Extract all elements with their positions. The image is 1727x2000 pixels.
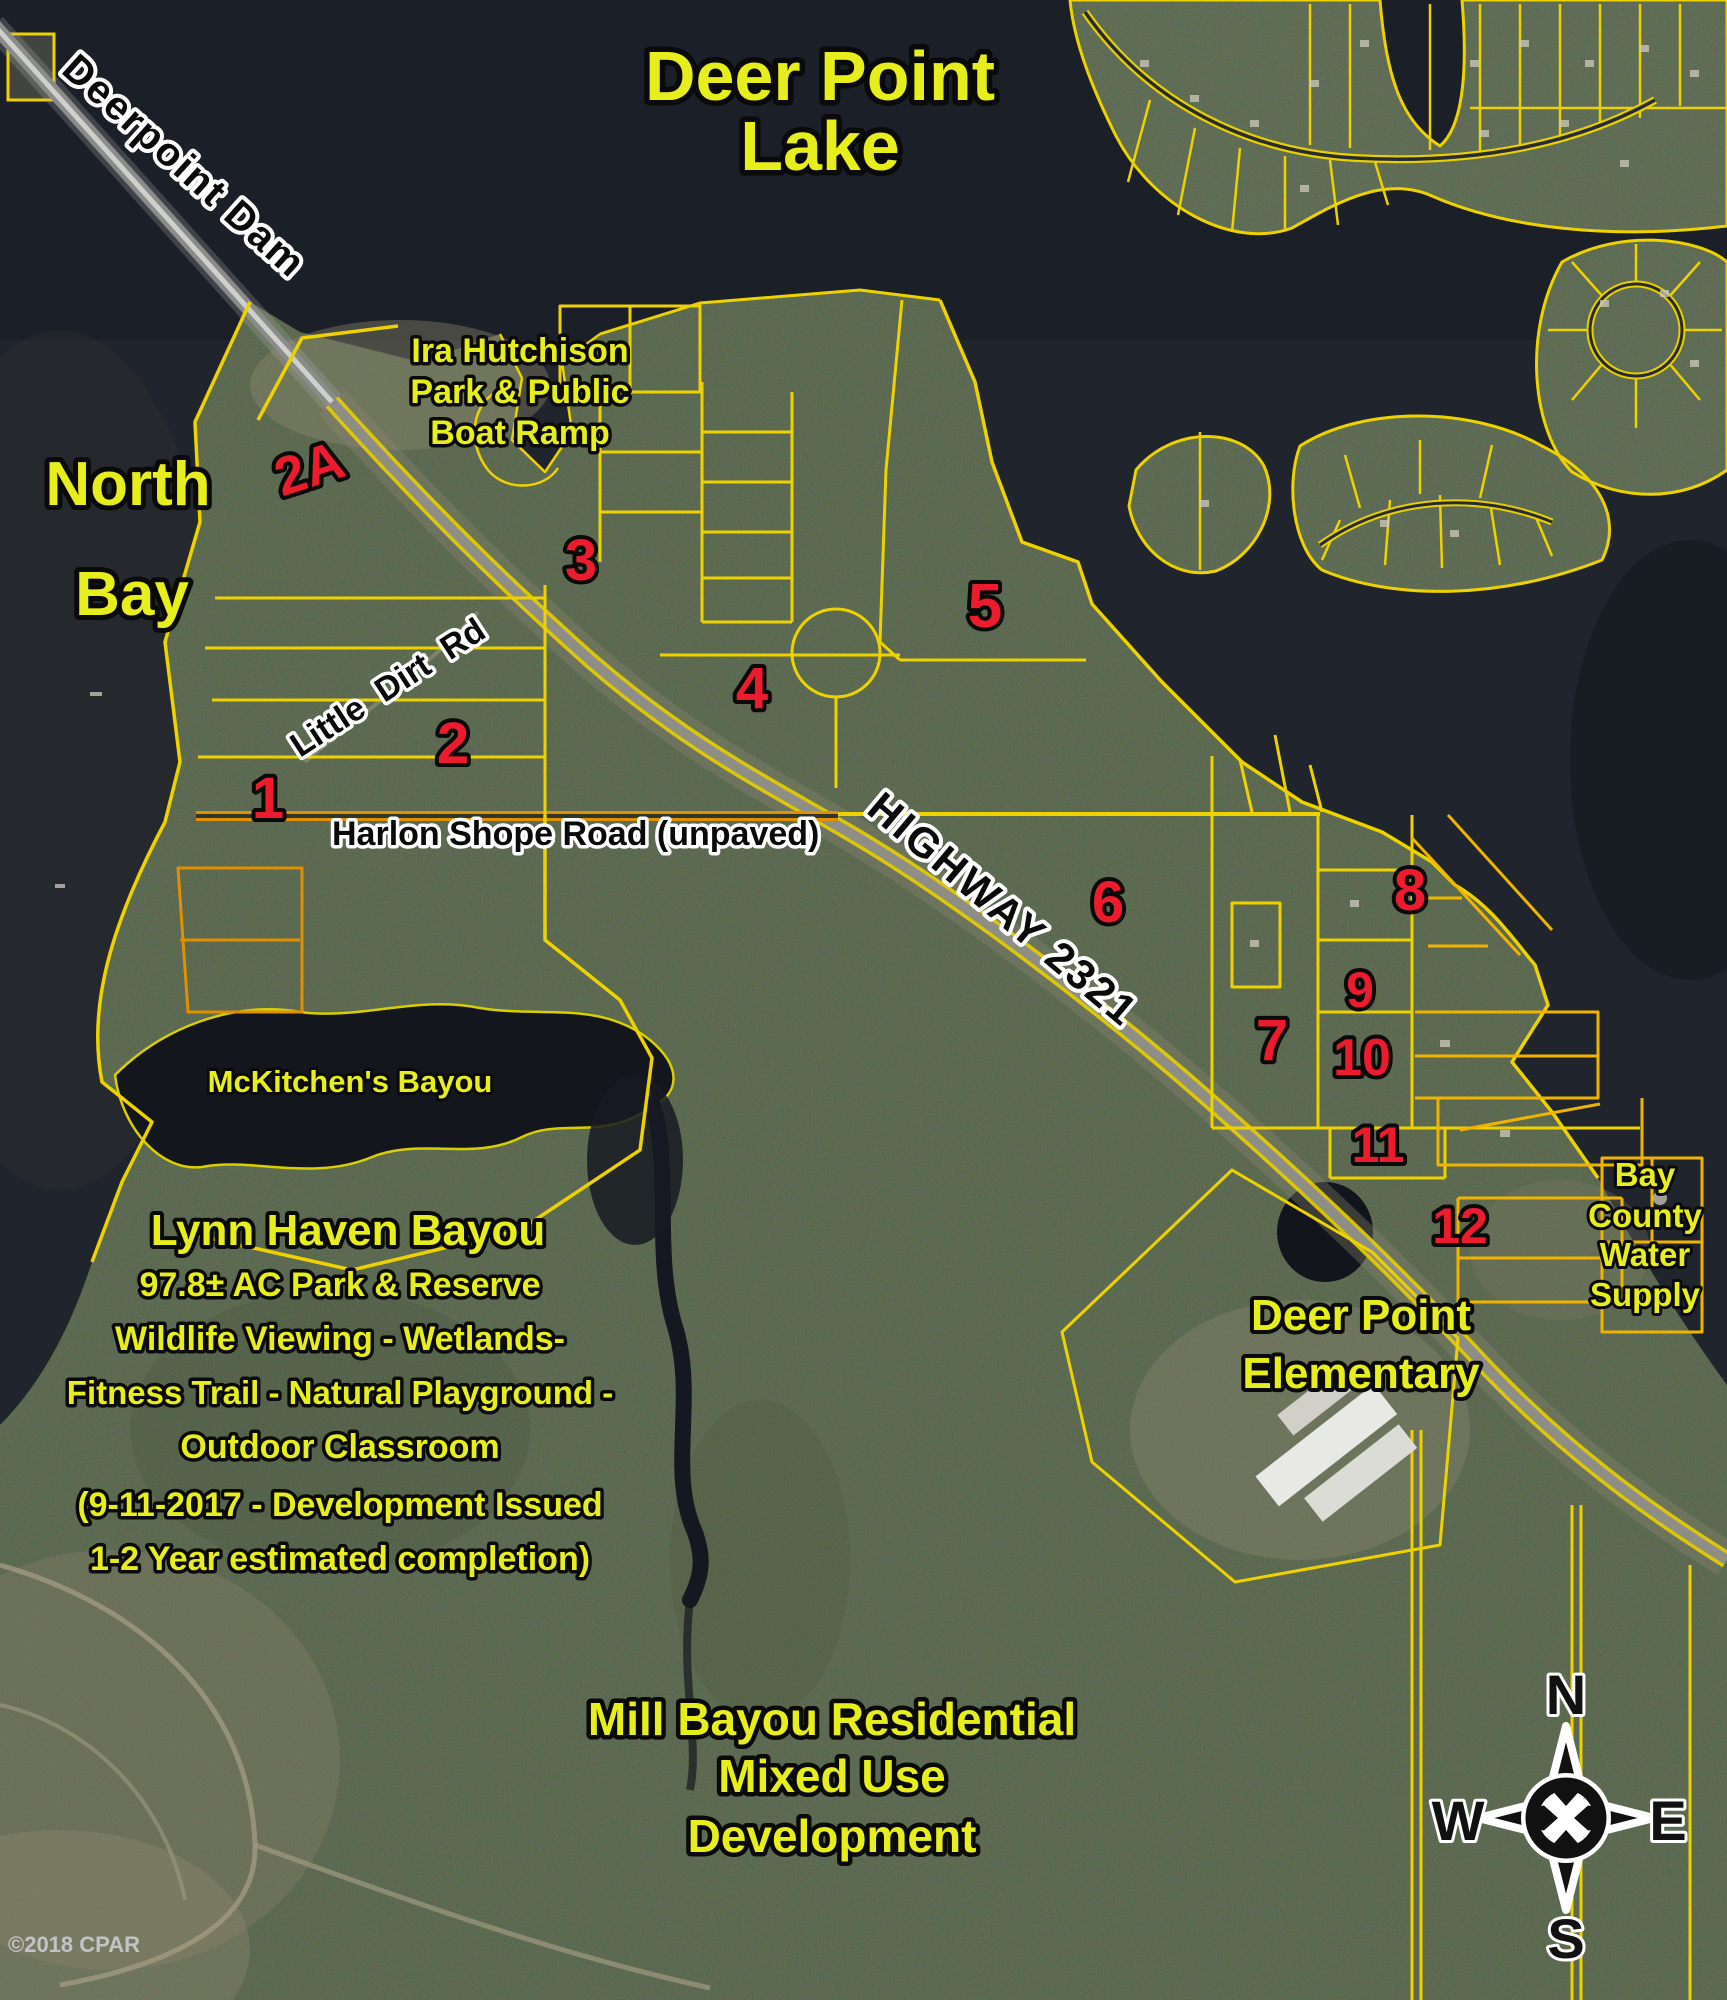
parcel-number-6: 6 <box>1092 870 1124 935</box>
parcel-number-12: 12 <box>1432 1198 1488 1254</box>
parcel-number-7: 7 <box>1256 1008 1288 1073</box>
park-label-line2: Park & Public <box>410 373 629 411</box>
bay-label-line1: North <box>45 450 210 519</box>
bay-label-line2: Bay <box>75 560 189 629</box>
reserve-line6: (9-11-2017 - Development Issued <box>77 1486 602 1524</box>
aerial-parcel-map: Deer Point Lake Deerpoint Dam North Bay … <box>0 0 1727 2000</box>
mill-line1: Mill Bayou Residential <box>588 1693 1076 1745</box>
parcel-number-8: 8 <box>1394 858 1426 923</box>
lake-title-line2: Lake <box>740 107 900 185</box>
compass-e-label: E <box>1649 1789 1686 1852</box>
parcel-number-10: 10 <box>1333 1029 1391 1087</box>
reserve-line1: Lynn Haven Bayou <box>151 1206 545 1255</box>
parcel-number-5: 5 <box>968 572 1002 641</box>
mill-line3: Development <box>688 1810 977 1862</box>
compass-s-label: S <box>1547 1907 1584 1970</box>
water-supply-line2: County <box>1588 1197 1702 1234</box>
reserve-line3: Wildlife Viewing - Wetlands- <box>115 1320 565 1358</box>
school-label-line1: Deer Point <box>1251 1291 1471 1340</box>
parcel-number-11: 11 <box>1352 1117 1405 1173</box>
compass-n-label: N <box>1546 1663 1586 1726</box>
water-supply-line3: Water <box>1600 1236 1691 1273</box>
parcel-number-1: 1 <box>252 766 284 831</box>
lake-title-line1: Deer Point <box>645 37 995 115</box>
compass-w-label: W <box>1432 1789 1485 1852</box>
copyright-watermark: ©2018 CPAR <box>8 1932 140 1957</box>
parcel-number-2: 2 <box>437 711 469 776</box>
map-canvas: Deer Point Lake Deerpoint Dam North Bay … <box>0 0 1727 2000</box>
parcel-number-4: 4 <box>736 656 768 721</box>
parcel-number-9: 9 <box>1346 962 1374 1018</box>
park-label-line3: Boat Ramp <box>430 414 609 452</box>
school-label-line2: Elementary <box>1242 1349 1480 1398</box>
reserve-line2: 97.8± AC Park & Reserve <box>139 1266 540 1304</box>
park-label-line1: Ira Hutchison <box>411 332 628 370</box>
mill-line2: Mixed Use <box>718 1750 946 1802</box>
water-supply-line4: Supply <box>1590 1276 1701 1313</box>
reserve-line7: 1-2 Year estimated completion) <box>90 1540 590 1578</box>
parcel-number-3: 3 <box>565 528 597 593</box>
mckitchens-bayou-label: McKitchen's Bayou <box>208 1064 493 1099</box>
harlon-road-label: Harlon Shope Road (unpaved) <box>332 815 819 853</box>
reserve-line4: Fitness Trail - Natural Playground - <box>67 1374 613 1411</box>
reserve-line5: Outdoor Classroom <box>180 1428 499 1466</box>
water-supply-line1: Bay <box>1615 1156 1676 1193</box>
